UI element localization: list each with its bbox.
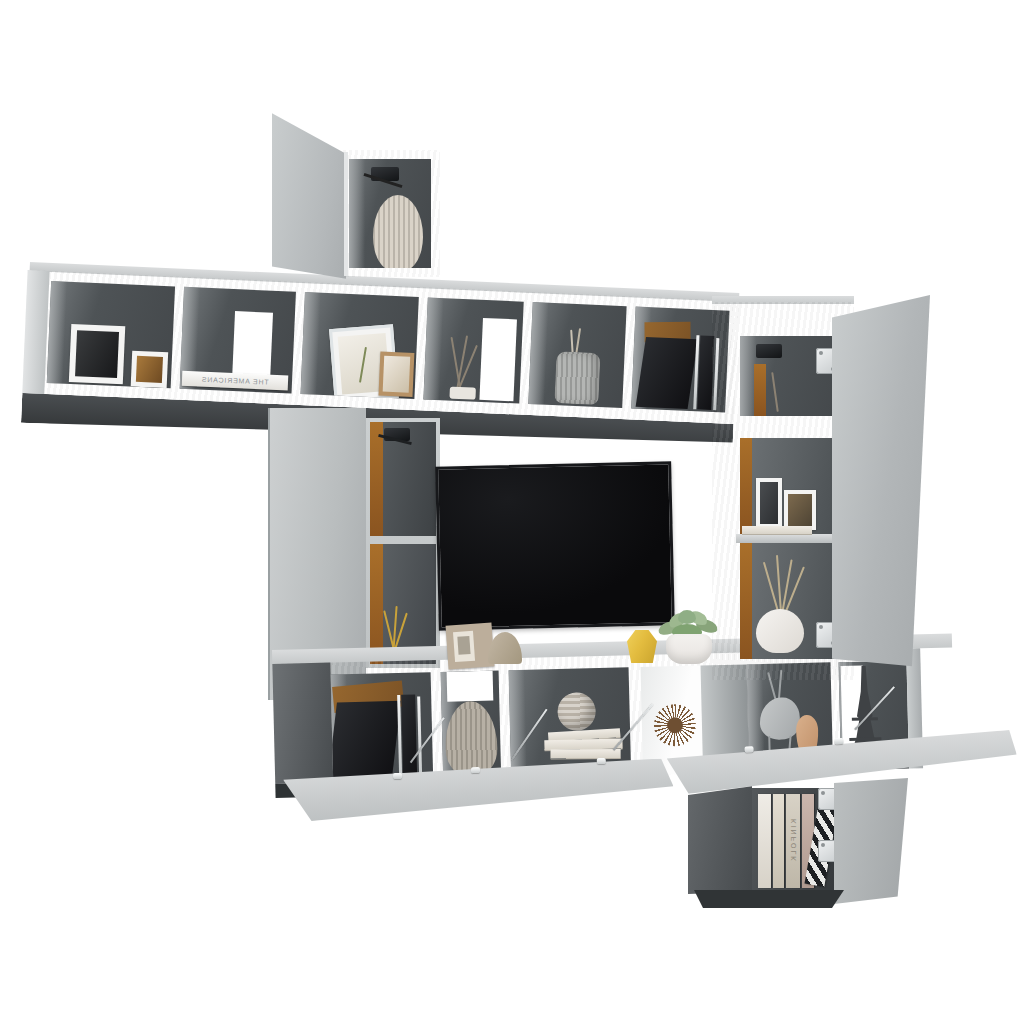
twig-decor bbox=[771, 372, 778, 412]
flat-book bbox=[742, 526, 812, 534]
right-cabinet-door bbox=[830, 295, 930, 670]
wood-frame bbox=[379, 351, 415, 396]
upper-cube-1 bbox=[47, 281, 175, 388]
eiffel-deck bbox=[849, 737, 881, 741]
right-cabinet bbox=[712, 296, 854, 680]
top-cabinet-door-edge bbox=[344, 152, 348, 276]
black-folders bbox=[636, 337, 698, 409]
spiky-ornament bbox=[653, 704, 696, 747]
amber-back-panel bbox=[754, 364, 766, 416]
tv-screen bbox=[435, 461, 675, 630]
support-arm bbox=[511, 709, 548, 761]
shelf-frame-large-print bbox=[760, 482, 778, 524]
photo-frame-large-print bbox=[75, 330, 119, 378]
shelf-frame-small-print bbox=[788, 494, 812, 526]
flap-hinge bbox=[393, 773, 402, 779]
bottom-right-cabinet-door bbox=[834, 778, 908, 904]
ribbed-vase-large bbox=[444, 701, 498, 778]
book-the-americans: THE AMERICANS bbox=[182, 371, 289, 391]
amber-back-panel bbox=[370, 544, 383, 664]
book-the-americans-title: THE AMERICANS bbox=[201, 376, 269, 386]
top-cabinet-interior bbox=[349, 159, 431, 268]
open-back-gap-2 bbox=[479, 318, 517, 401]
upper-cube-4 bbox=[423, 297, 523, 403]
ceramic-jar bbox=[554, 351, 600, 405]
deer-figurine bbox=[759, 697, 800, 740]
bottom-cube-1 bbox=[331, 672, 434, 782]
upper-cube-3 bbox=[301, 292, 419, 399]
white-book bbox=[551, 749, 621, 758]
abstract-sculpture bbox=[488, 632, 522, 664]
upper-cube-2: THE AMERICANS bbox=[180, 287, 296, 394]
right-cabinet-cell-mid bbox=[740, 438, 838, 534]
open-back-gap bbox=[232, 311, 273, 381]
kinfolk-book-title: KINFOLK bbox=[786, 794, 800, 888]
bottom-right-cabinet-underside bbox=[694, 890, 844, 908]
flap-hinge bbox=[597, 758, 606, 764]
photo-frame-small bbox=[131, 351, 169, 389]
product-photo-stage: THE AMERICANS bbox=[0, 0, 1024, 1024]
bottom-right-cabinet: KINFOLK bbox=[688, 778, 920, 918]
botanical-stem bbox=[359, 347, 367, 383]
bottom-right-cabinet-side bbox=[688, 784, 752, 894]
left-column-cells bbox=[366, 418, 440, 668]
photo-frame-small-print bbox=[136, 356, 163, 383]
top-cabinet-door bbox=[272, 108, 346, 284]
shelf-frame-large bbox=[756, 478, 782, 528]
photo-frame-large bbox=[69, 324, 125, 384]
magazine-spine bbox=[758, 794, 771, 888]
wood-frame-print bbox=[383, 356, 411, 393]
open-back-gap-3 bbox=[447, 671, 494, 702]
ribbed-vase bbox=[373, 195, 423, 268]
left-cell-upper bbox=[370, 422, 436, 536]
black-folder bbox=[401, 695, 417, 781]
twig-vase bbox=[449, 387, 475, 400]
bottom-row-left-cap bbox=[272, 663, 333, 784]
kinfolk-book: KINFOLK bbox=[786, 794, 800, 888]
top-cabinet bbox=[340, 150, 440, 277]
succulent-pot bbox=[666, 634, 712, 664]
folder-edge bbox=[417, 696, 422, 780]
right-cabinet-shelf bbox=[736, 534, 842, 543]
stripe-sphere bbox=[557, 692, 596, 731]
photo-frame-beige bbox=[446, 622, 495, 669]
door-hinge-black bbox=[756, 344, 782, 358]
amber-back-panel bbox=[370, 422, 383, 536]
media-boxes bbox=[331, 701, 401, 783]
shelf-frame-small bbox=[784, 490, 816, 530]
photo-frame-beige-print bbox=[457, 636, 470, 655]
amber-back-panel bbox=[740, 543, 752, 659]
bottom-cube-2 bbox=[441, 670, 502, 779]
flap-hinge bbox=[471, 767, 480, 773]
upper-cube-5 bbox=[528, 302, 626, 408]
white-vase bbox=[756, 609, 804, 653]
amber-back-panel bbox=[740, 438, 752, 534]
flap-hinge bbox=[834, 738, 843, 744]
yellow-vase bbox=[627, 630, 657, 663]
flap-hinge bbox=[744, 746, 753, 752]
photo-frame-beige-mat bbox=[453, 631, 475, 662]
succulent-leaf bbox=[678, 610, 696, 624]
magazine-spine bbox=[773, 794, 784, 888]
